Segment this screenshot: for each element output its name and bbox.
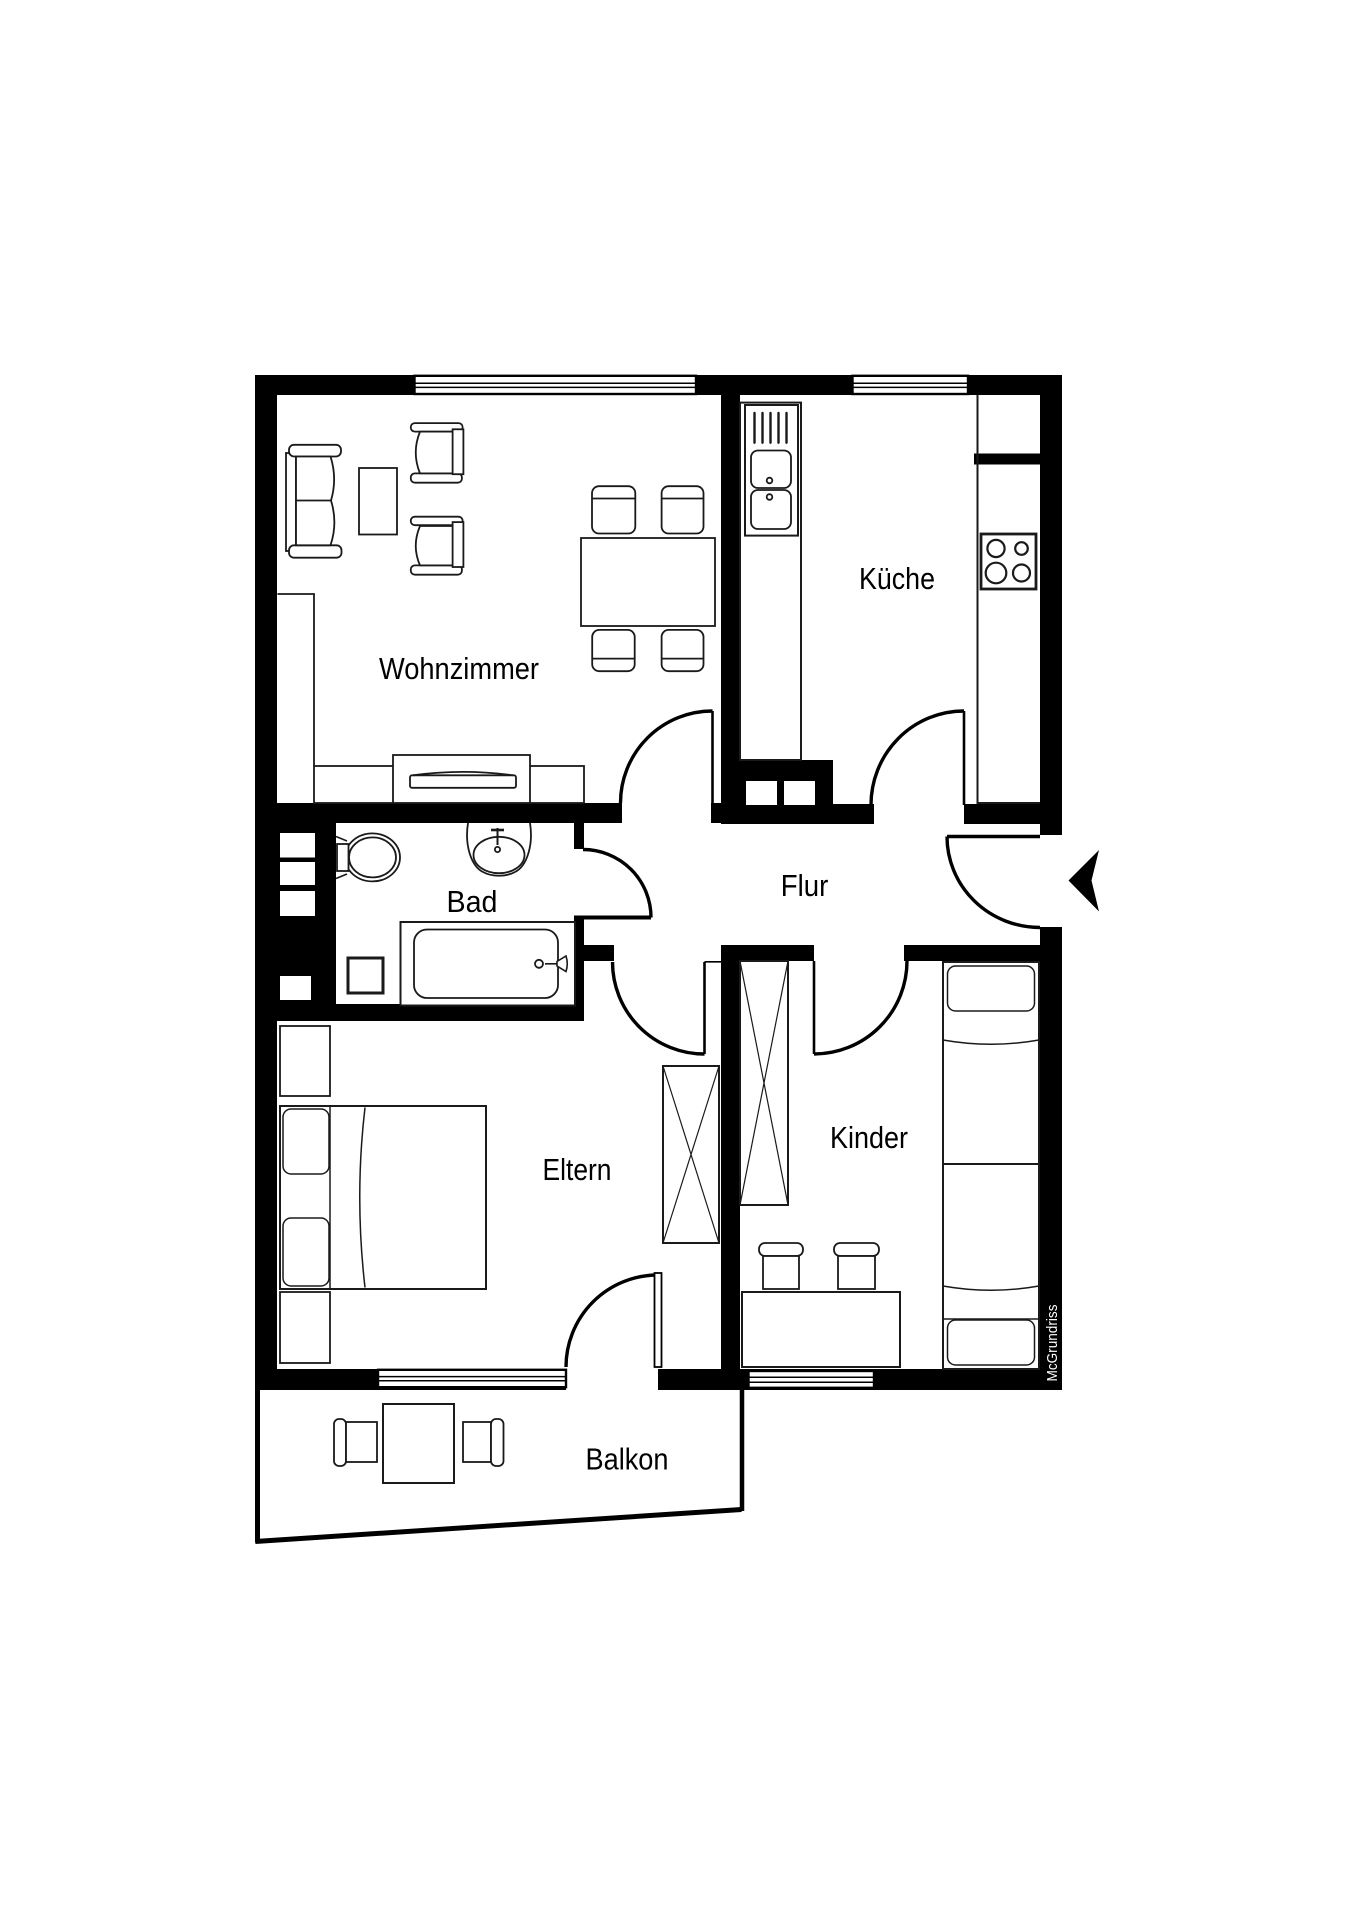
svg-text:Küche: Küche <box>859 561 935 596</box>
svg-text:Bad: Bad <box>447 884 498 919</box>
svg-text:Balkon: Balkon <box>586 1442 669 1477</box>
svg-text:Flur: Flur <box>781 868 829 903</box>
svg-text:McGrundriss: McGrundriss <box>1045 1305 1061 1382</box>
svg-text:Eltern: Eltern <box>543 1152 612 1187</box>
svg-text:Kinder: Kinder <box>830 1120 908 1155</box>
svg-text:Wohnzimmer: Wohnzimmer <box>379 651 539 686</box>
